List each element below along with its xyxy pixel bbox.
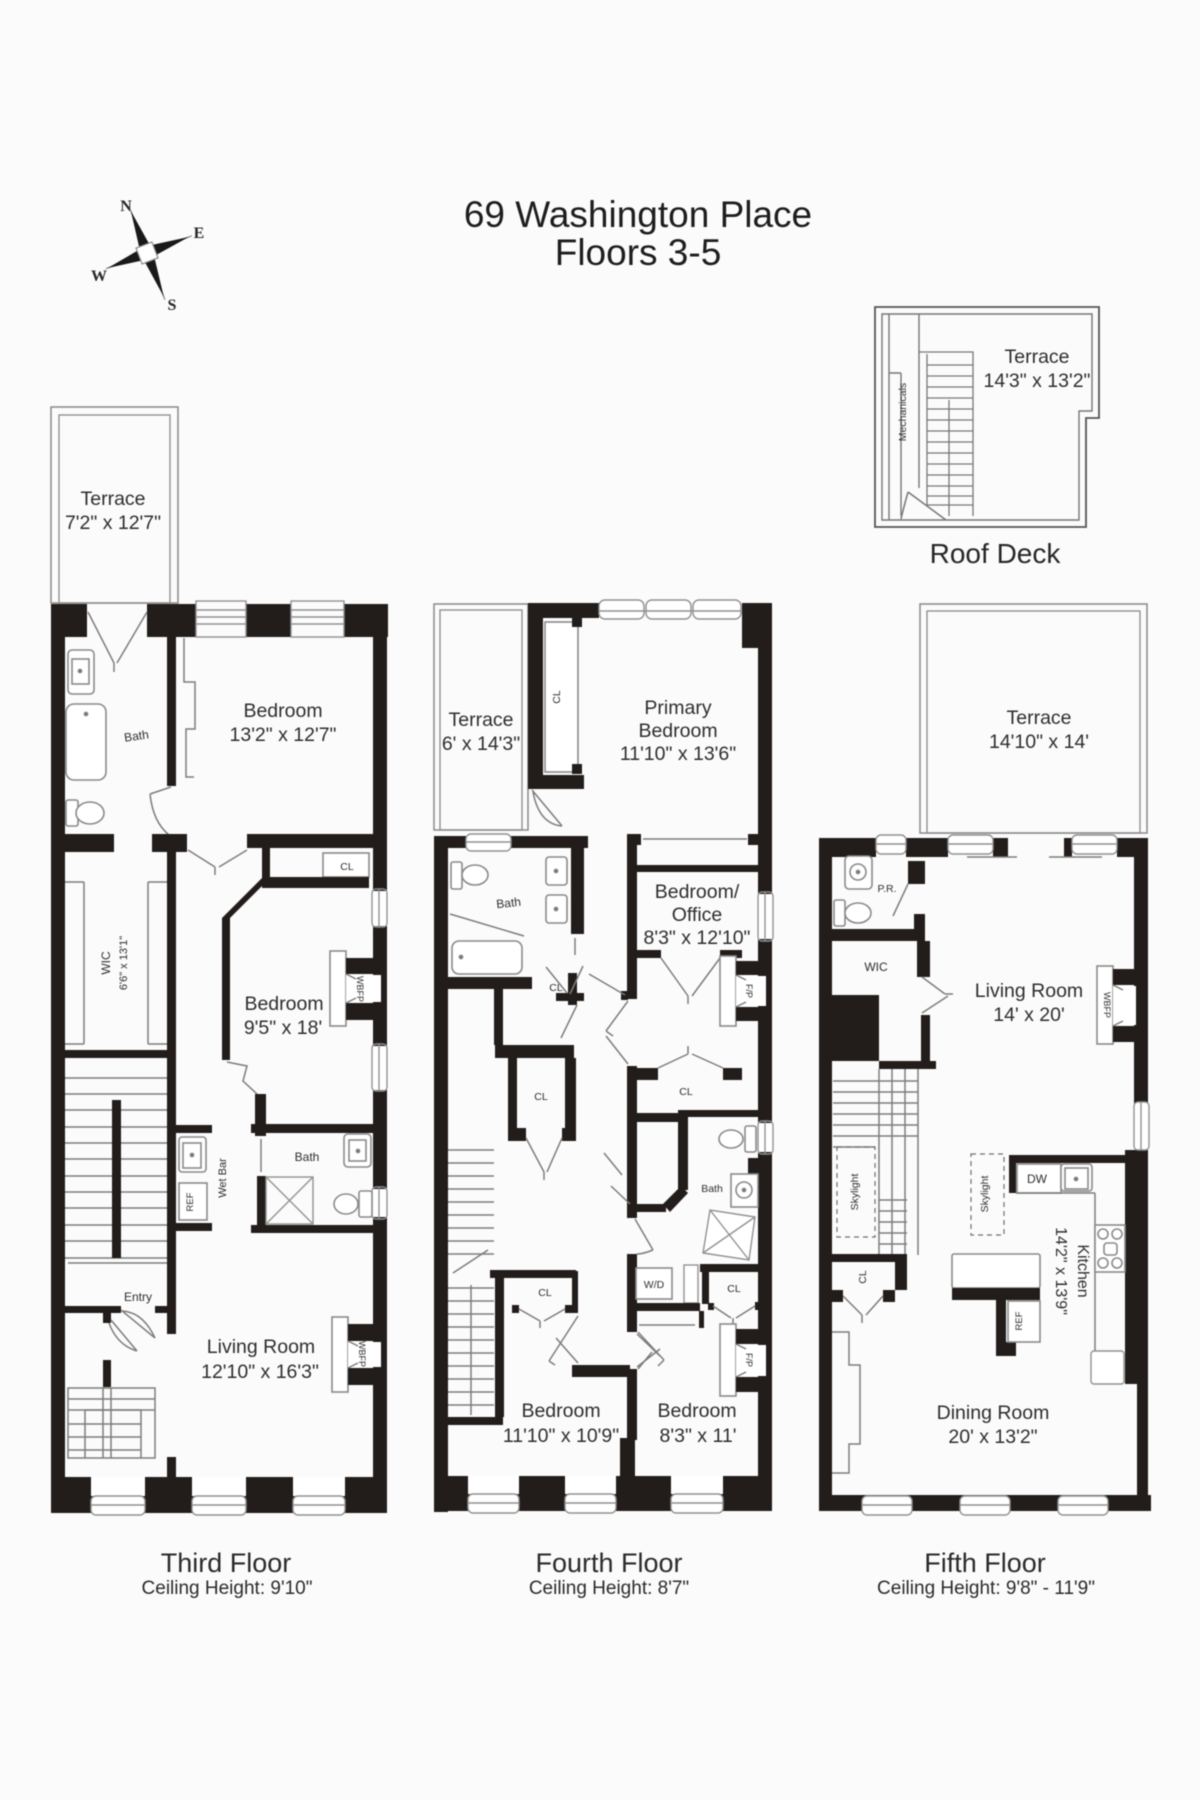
svg-text:CL: CL bbox=[549, 982, 563, 994]
svg-text:6'6" x 13'1": 6'6" x 13'1" bbox=[118, 936, 130, 990]
svg-text:CL: CL bbox=[538, 1287, 552, 1299]
svg-text:S: S bbox=[168, 297, 177, 314]
svg-text:REF: REF bbox=[185, 1192, 196, 1211]
svg-text:Terrace: Terrace bbox=[1004, 346, 1069, 368]
svg-text:Living Room: Living Room bbox=[207, 1336, 315, 1358]
svg-text:Roof Deck: Roof Deck bbox=[930, 538, 1062, 569]
svg-text:Bedroom: Bedroom bbox=[657, 1400, 736, 1422]
svg-text:6' x 14'3": 6' x 14'3" bbox=[442, 733, 520, 755]
svg-text:DW: DW bbox=[1027, 1172, 1048, 1186]
svg-text:20' x 13'2": 20' x 13'2" bbox=[948, 1426, 1037, 1448]
svg-text:Dining Room: Dining Room bbox=[937, 1402, 1050, 1424]
svg-text:Floors 3-5: Floors 3-5 bbox=[555, 232, 722, 273]
svg-text:REF: REF bbox=[1014, 1311, 1025, 1330]
svg-text:14' x 20': 14' x 20' bbox=[993, 1004, 1064, 1026]
svg-text:CL: CL bbox=[679, 1086, 693, 1098]
svg-text:11'10" x 13'6": 11'10" x 13'6" bbox=[620, 743, 736, 765]
svg-text:WIC: WIC bbox=[99, 951, 113, 975]
svg-text:F/P: F/P bbox=[744, 984, 754, 998]
svg-text:Wet Bar: Wet Bar bbox=[217, 1158, 229, 1198]
svg-text:CL: CL bbox=[727, 1283, 741, 1295]
svg-text:Ceiling Height: 9'10": Ceiling Height: 9'10" bbox=[142, 1578, 313, 1599]
svg-text:CL: CL bbox=[551, 690, 563, 704]
svg-text:Ceiling Height: 8'7": Ceiling Height: 8'7" bbox=[529, 1578, 689, 1599]
svg-text:Bath: Bath bbox=[701, 1183, 723, 1195]
svg-text:Fifth Floor: Fifth Floor bbox=[924, 1548, 1046, 1578]
svg-text:W: W bbox=[91, 268, 107, 285]
svg-text:CL: CL bbox=[857, 1270, 869, 1284]
svg-text:14'2" x 13'9": 14'2" x 13'9" bbox=[1052, 1227, 1069, 1315]
svg-text:12'10" x 16'3": 12'10" x 16'3" bbox=[201, 1361, 319, 1383]
svg-text:Bedroom: Bedroom bbox=[244, 993, 323, 1015]
svg-text:F/P: F/P bbox=[744, 1353, 754, 1367]
svg-text:E: E bbox=[194, 225, 205, 242]
svg-text:Office: Office bbox=[672, 904, 723, 926]
svg-text:N: N bbox=[120, 198, 132, 215]
svg-text:11'10" x 10'9": 11'10" x 10'9" bbox=[503, 1425, 619, 1447]
svg-text:Bedroom: Bedroom bbox=[638, 720, 717, 742]
svg-text:14'3" x 13'2": 14'3" x 13'2" bbox=[984, 370, 1091, 392]
svg-text:Skylight: Skylight bbox=[849, 1174, 861, 1211]
svg-text:Bedroom: Bedroom bbox=[243, 700, 322, 722]
svg-text:Entry: Entry bbox=[124, 1290, 152, 1304]
svg-text:Primary: Primary bbox=[644, 697, 711, 719]
svg-text:W/D: W/D bbox=[644, 1279, 665, 1291]
svg-text:14'10" x 14': 14'10" x 14' bbox=[989, 731, 1089, 753]
svg-text:Third Floor: Third Floor bbox=[161, 1548, 292, 1578]
svg-text:Terrace: Terrace bbox=[80, 488, 145, 510]
svg-text:69 Washington Place: 69 Washington Place bbox=[464, 194, 812, 235]
svg-text:Ceiling Height: 9'8" - 11'9": Ceiling Height: 9'8" - 11'9" bbox=[877, 1578, 1095, 1599]
svg-text:Terrace: Terrace bbox=[448, 709, 513, 731]
svg-text:8'3" x 12'10": 8'3" x 12'10" bbox=[644, 927, 751, 949]
svg-text:CL: CL bbox=[534, 1091, 548, 1103]
svg-text:Bedroom/: Bedroom/ bbox=[655, 881, 740, 903]
svg-text:Living Room: Living Room bbox=[975, 980, 1083, 1002]
svg-text:Bath: Bath bbox=[496, 895, 522, 912]
svg-text:WBFP: WBFP bbox=[1102, 992, 1112, 1018]
svg-text:Bath: Bath bbox=[295, 1150, 320, 1164]
svg-text:Skylight: Skylight bbox=[979, 1176, 991, 1213]
svg-text:WBFP: WBFP bbox=[355, 976, 365, 1002]
svg-text:Kitchen: Kitchen bbox=[1074, 1244, 1091, 1297]
svg-text:Terrace: Terrace bbox=[1006, 707, 1071, 729]
svg-text:9'5" x 18': 9'5" x 18' bbox=[244, 1017, 322, 1039]
svg-text:Fourth Floor: Fourth Floor bbox=[535, 1548, 682, 1578]
svg-text:WBFP: WBFP bbox=[357, 1341, 367, 1367]
svg-text:Mechanicals: Mechanicals bbox=[897, 383, 909, 441]
svg-text:7'2" x 12'7": 7'2" x 12'7" bbox=[65, 512, 161, 534]
svg-text:CL: CL bbox=[340, 861, 354, 873]
svg-text:8'3" x 11': 8'3" x 11' bbox=[660, 1425, 737, 1447]
svg-text:P.R.: P.R. bbox=[877, 883, 896, 895]
svg-text:13'2" x 12'7": 13'2" x 12'7" bbox=[230, 724, 337, 746]
svg-text:Bedroom: Bedroom bbox=[521, 1400, 600, 1422]
svg-text:WIC: WIC bbox=[864, 960, 888, 974]
